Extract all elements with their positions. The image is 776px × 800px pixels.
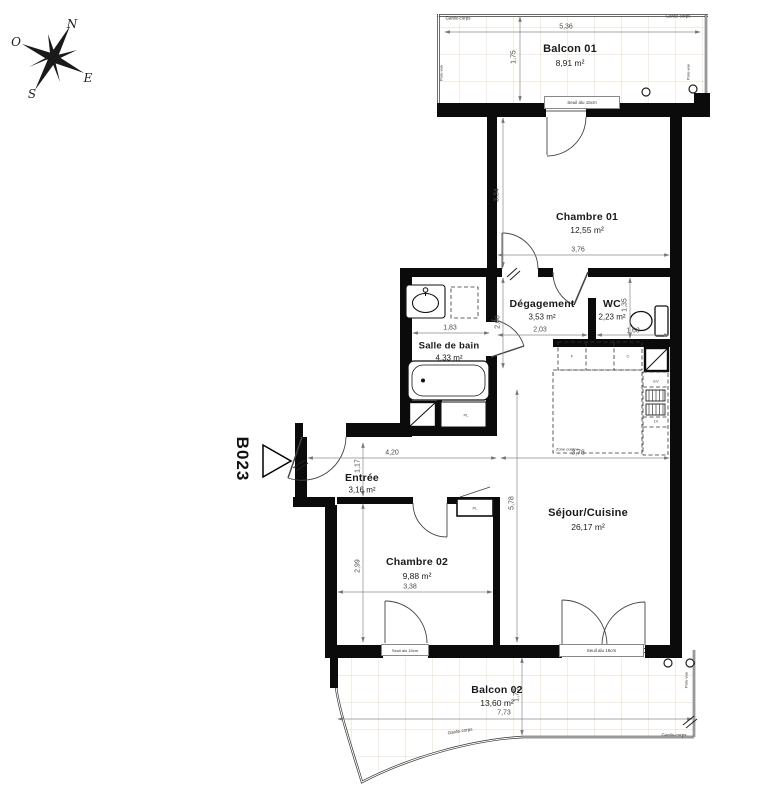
sink-label: EV bbox=[653, 379, 658, 384]
balcony02-post bbox=[664, 659, 672, 667]
dim-ch02-w: 3,38 bbox=[403, 584, 417, 591]
compass-letter-s: S bbox=[28, 87, 36, 101]
door-sejour-left-swing bbox=[562, 600, 607, 645]
wall-east bbox=[670, 103, 682, 658]
wall-sdb-north bbox=[400, 268, 487, 277]
washbasin-bowl bbox=[413, 294, 439, 313]
plan-linework bbox=[0, 0, 776, 800]
dim-ch01-d: 3,34 bbox=[494, 188, 501, 202]
bathtub-drain bbox=[421, 379, 425, 383]
balcony-02-floor bbox=[336, 650, 694, 782]
door-closet-chambre02 bbox=[460, 487, 490, 497]
technical-duct bbox=[409, 402, 436, 427]
wall-wc-north bbox=[588, 268, 670, 277]
guardrail-label: Garde-corps bbox=[445, 16, 470, 21]
wall-south bbox=[428, 645, 562, 658]
dim-sdb-w: 1,83 bbox=[443, 325, 457, 332]
compass-letter-n: N bbox=[67, 17, 78, 31]
door-sdb-leaf bbox=[491, 346, 524, 357]
dim-deg-w: 2,03 bbox=[533, 327, 547, 334]
wall-chambre02-west bbox=[325, 505, 337, 658]
room-area-chambre01: 12,55 m² bbox=[570, 225, 604, 235]
wall-entree-north bbox=[295, 423, 303, 437]
wall-entree-north-inner bbox=[400, 427, 497, 436]
door-chambre02-swing bbox=[413, 503, 447, 537]
dim-wc-d: 1,35 bbox=[622, 298, 629, 312]
wall-wc-west bbox=[588, 298, 596, 345]
dim-sejour-d: 5,78 bbox=[509, 496, 516, 510]
threshold-label-sejour: Seuil alu 15cm bbox=[559, 644, 644, 657]
wall-chambre01-south bbox=[487, 268, 502, 277]
wall-balcony02-stub bbox=[330, 658, 338, 688]
kitchen-zone-label: Zone cuisine bbox=[556, 447, 579, 452]
door-wc-leaf bbox=[574, 272, 588, 305]
room-area-degagement: 3,53 m² bbox=[528, 313, 555, 322]
dim-balcon02-d: 1,75 bbox=[514, 688, 521, 702]
guardrail-label: Garde-corps bbox=[665, 14, 690, 19]
privacy-screen-label: Pare-vue bbox=[686, 64, 691, 80]
privacy-screen-label: Pare-vue bbox=[439, 65, 444, 81]
washing-machine-slot bbox=[451, 287, 478, 318]
fridge-label: F bbox=[571, 354, 573, 359]
kitchen-zone-outline bbox=[553, 370, 642, 453]
dim-deg-d: 2,00 bbox=[495, 315, 502, 329]
door-balcony-chambre02-swing bbox=[385, 601, 427, 643]
dishwasher-label: LV bbox=[654, 419, 659, 424]
wall-south bbox=[645, 645, 682, 658]
door-sejour-right-swing bbox=[602, 602, 645, 645]
dim-ch01-w: 3,76 bbox=[571, 247, 585, 254]
kitchen-sink-hatch bbox=[646, 390, 665, 415]
dim-balcon01-d: 1,75 bbox=[511, 50, 518, 64]
room-name-wc: WC bbox=[603, 298, 621, 310]
privacy-screen-label: Pare-vue bbox=[684, 672, 689, 688]
room-name-degagement: Dégagement bbox=[509, 298, 574, 310]
dim-ch02-d: 2,99 bbox=[355, 559, 362, 573]
room-area-chambre02: 9,88 m² bbox=[403, 571, 432, 581]
door-balcony-chambre01-swing bbox=[547, 117, 586, 156]
balcony01-post bbox=[689, 85, 697, 93]
dim-entree-d: 1,17 bbox=[355, 459, 362, 473]
room-area-sdb: 4,33 m² bbox=[435, 354, 462, 363]
closet-label-chambre02: PL bbox=[473, 506, 478, 511]
room-area-balcon01: 8,91 m² bbox=[556, 58, 585, 68]
wall-chambre02-east bbox=[493, 497, 500, 645]
wall-chambre02-north bbox=[337, 497, 413, 504]
compass-rose bbox=[22, 26, 84, 90]
guardrail-label: Garde-corps bbox=[661, 733, 686, 738]
bathtub bbox=[408, 361, 489, 400]
floor-plan: N O E S B023 Balcon 01 8,91 m² Chambre 0… bbox=[0, 0, 776, 800]
dim-entree-w: 4,20 bbox=[385, 450, 399, 457]
wall-entree-north bbox=[346, 423, 412, 437]
dim-wc-w: 1,60 bbox=[626, 328, 640, 335]
room-name-chambre02: Chambre 02 bbox=[386, 556, 448, 568]
dim-balcon02-w: 7,73 bbox=[497, 710, 511, 717]
dimension-lines bbox=[308, 17, 700, 735]
room-name-balcon01: Balcon 01 bbox=[543, 43, 597, 55]
room-name-entree: Entrée bbox=[345, 472, 379, 484]
toilet-cistern bbox=[655, 306, 668, 336]
door-chambre01-swing bbox=[502, 233, 538, 269]
closet-label-entree: PL bbox=[464, 413, 469, 418]
compass-letter-o: O bbox=[11, 35, 21, 49]
unit-entry-arrow bbox=[263, 445, 291, 477]
wall-kitchen-north bbox=[553, 339, 670, 347]
wall-corner-ne bbox=[694, 93, 710, 117]
technical-duct bbox=[645, 348, 668, 371]
room-area-wc: 2,23 m² bbox=[598, 313, 625, 322]
compass-letter-e: E bbox=[84, 71, 93, 85]
balcony02-post bbox=[686, 659, 694, 667]
wall-south bbox=[325, 645, 383, 658]
room-area-balcon02: 13,60 m² bbox=[480, 698, 514, 708]
unit-label: B023 bbox=[232, 437, 252, 482]
room-area-sejour: 26,17 m² bbox=[571, 522, 605, 532]
room-name-chambre01: Chambre 01 bbox=[556, 211, 618, 223]
balcony01-post bbox=[642, 88, 650, 96]
dim-balcon01-w: 5,36 bbox=[559, 24, 573, 31]
threshold-label-balcon01: Seuil alu 15cm bbox=[544, 96, 620, 109]
room-area-entree: 3,16 m² bbox=[348, 486, 375, 495]
room-name-sdb: Salle de bain bbox=[419, 341, 480, 352]
washbasin-tap bbox=[423, 288, 428, 293]
wall-chambre01-south bbox=[538, 268, 553, 277]
room-name-sejour: Séjour/Cuisine bbox=[548, 507, 628, 519]
cooktop-label: C bbox=[627, 354, 630, 359]
threshold-label-chambre02: Seuil alu 15cm bbox=[381, 644, 429, 656]
